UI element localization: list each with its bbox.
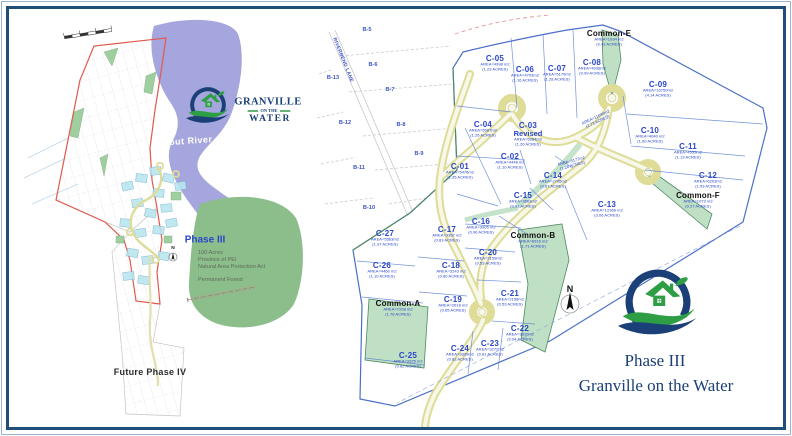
right-detail-map [315,8,785,428]
left-overview-map [8,8,312,428]
scale-bar [64,26,112,39]
plat-canvas: Trout River Phase III 100 Acres Province… [0,0,792,436]
permanent-forest-area [189,197,303,328]
north-arrow-small [169,253,177,262]
